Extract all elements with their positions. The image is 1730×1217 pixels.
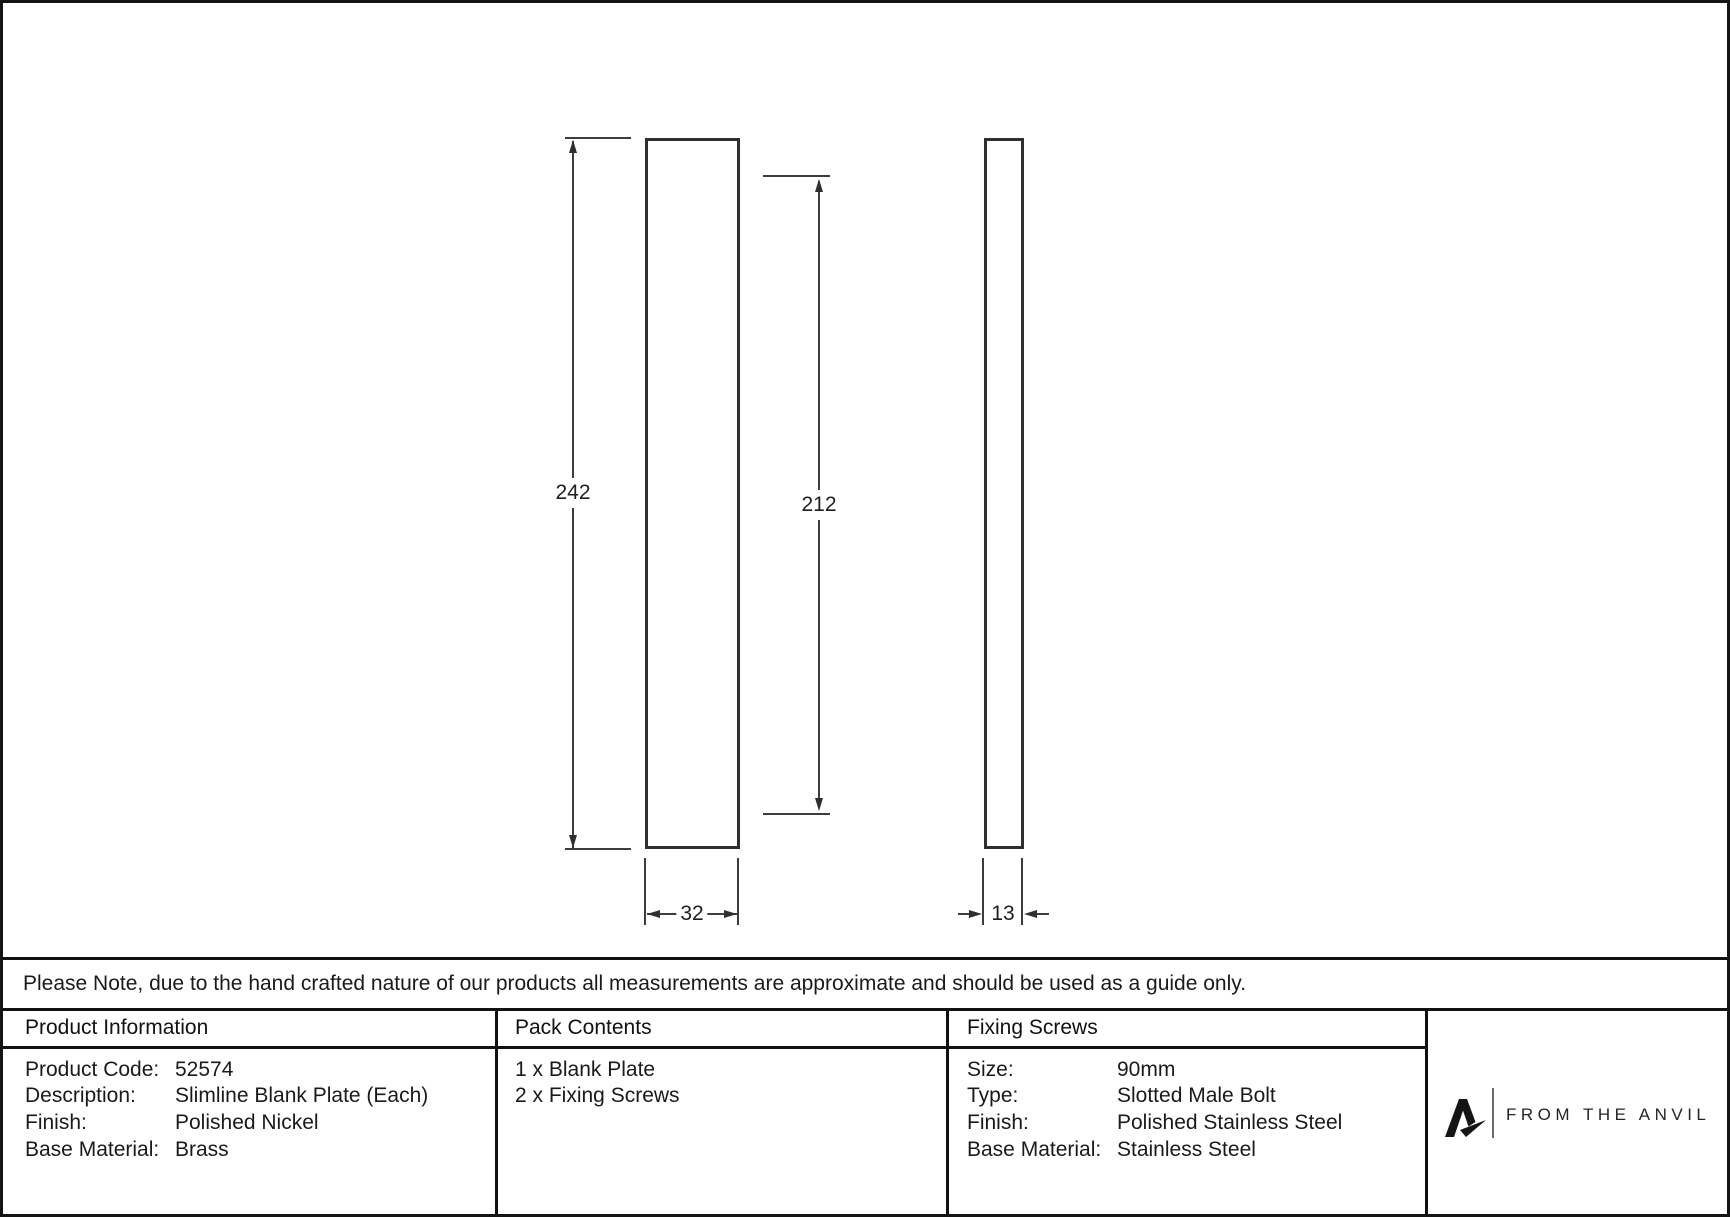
measurement-note: Please Note, due to the hand crafted nat… — [23, 972, 1246, 996]
arrow-up-icon — [569, 140, 577, 153]
arrow-left-icon — [647, 910, 660, 918]
row-label: Finish: — [25, 1111, 87, 1135]
row-label: Type: — [967, 1084, 1018, 1108]
column-divider — [1425, 1008, 1428, 1217]
row-value: 52574 — [175, 1058, 233, 1082]
section-header: Pack Contents — [515, 1016, 652, 1040]
extension-line — [1021, 858, 1023, 925]
dimension-label-32: 32 — [676, 899, 707, 929]
plate-front-view — [645, 138, 740, 849]
row-label: Base Material: — [25, 1138, 159, 1162]
brand-name: FROM THE ANVIL — [1506, 1105, 1710, 1125]
extension-line — [763, 175, 830, 177]
dimension-label-13: 13 — [987, 899, 1018, 929]
pack-item: 1 x Blank Plate — [515, 1058, 655, 1082]
row-value: Slimline Blank Plate (Each) — [175, 1084, 428, 1108]
row-value: Brass — [175, 1138, 229, 1162]
divider — [3, 957, 1730, 960]
pack-item: 2 x Fixing Screws — [515, 1084, 680, 1108]
extension-line — [763, 813, 830, 815]
column-divider — [946, 1008, 949, 1217]
row-value: Slotted Male Bolt — [1117, 1084, 1276, 1108]
row-label: Base Material: — [967, 1138, 1101, 1162]
row-value: 90mm — [1117, 1058, 1175, 1082]
divider — [3, 1008, 1730, 1011]
row-label: Size: — [967, 1058, 1014, 1082]
extension-line — [737, 858, 739, 925]
extension-line — [982, 858, 984, 925]
row-value: Stainless Steel — [1117, 1138, 1256, 1162]
arrow-left-icon — [1024, 910, 1037, 918]
column-divider — [495, 1008, 498, 1217]
arrow-down-icon — [815, 798, 823, 811]
row-label: Product Code: — [25, 1058, 159, 1082]
logo-divider — [1492, 1088, 1494, 1138]
section-header: Product Information — [25, 1016, 208, 1040]
header-underline — [3, 1046, 1427, 1049]
extension-line — [565, 848, 631, 850]
arrow-right-icon — [724, 910, 737, 918]
spec-sheet: 242 212 32 13 — [0, 0, 1730, 1217]
row-label: Finish: — [967, 1111, 1029, 1135]
plate-side-view — [984, 138, 1024, 849]
row-value: Polished Stainless Steel — [1117, 1111, 1342, 1135]
row-label: Description: — [25, 1084, 136, 1108]
extension-line — [644, 858, 646, 925]
dimension-label-212: 212 — [797, 490, 840, 520]
row-value: Polished Nickel — [175, 1111, 319, 1135]
dimension-label-242: 242 — [551, 478, 594, 508]
arrow-down-icon — [569, 835, 577, 848]
anvil-a-icon — [1444, 1099, 1486, 1137]
extension-line — [565, 137, 631, 139]
arrow-right-icon — [969, 910, 982, 918]
arrow-up-icon — [815, 179, 823, 192]
section-header: Fixing Screws — [967, 1016, 1098, 1040]
